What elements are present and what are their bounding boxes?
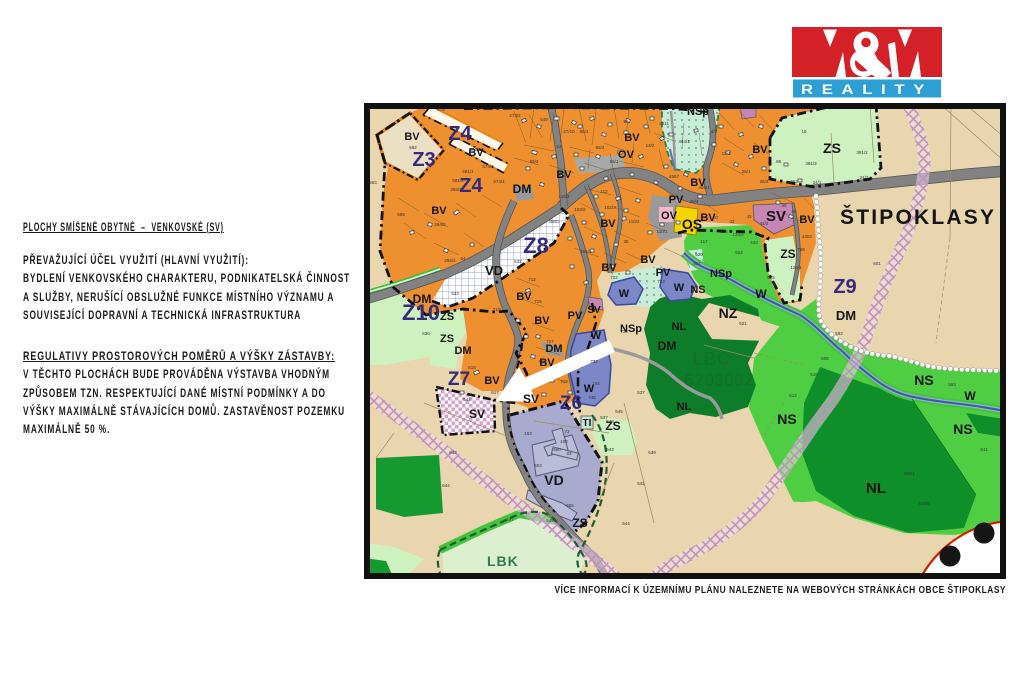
- svg-text:83: 83: [566, 451, 572, 456]
- svg-text:112: 112: [600, 189, 608, 194]
- svg-text:439/5: 439/5: [918, 501, 930, 506]
- svg-text:BV: BV: [640, 254, 656, 266]
- svg-text:548: 548: [606, 419, 614, 424]
- svg-text:102: 102: [560, 439, 568, 444]
- svg-text:64: 64: [460, 256, 466, 261]
- svg-text:610: 610: [810, 372, 818, 377]
- svg-text:644: 644: [442, 483, 450, 488]
- svg-text:12/1: 12/1: [722, 151, 731, 156]
- svg-text:W: W: [674, 282, 685, 294]
- svg-text:71/2: 71/2: [493, 307, 502, 312]
- svg-text:391/2: 391/2: [856, 150, 868, 155]
- svg-text:391/3: 391/3: [805, 161, 817, 166]
- svg-text:49: 49: [781, 203, 787, 208]
- svg-text:DM: DM: [513, 182, 532, 196]
- svg-text:66/1: 66/1: [580, 129, 589, 134]
- svg-text:DM: DM: [658, 339, 677, 353]
- svg-text:26/1: 26/1: [742, 169, 751, 174]
- svg-text:BV: BV: [534, 315, 550, 327]
- svg-text:611: 611: [980, 447, 988, 452]
- svg-text:ZS: ZS: [440, 311, 454, 323]
- svg-text:718: 718: [538, 359, 546, 364]
- svg-text:585: 585: [397, 212, 405, 217]
- svg-text:439/1: 439/1: [903, 471, 915, 476]
- svg-text:517: 517: [693, 261, 701, 266]
- svg-text:117: 117: [700, 239, 708, 244]
- svg-text:15: 15: [801, 129, 807, 134]
- svg-text:24/2: 24/2: [860, 175, 869, 180]
- svg-text:118: 118: [720, 229, 728, 234]
- svg-text:NS: NS: [777, 411, 796, 427]
- svg-text:593: 593: [948, 382, 956, 387]
- svg-text:134/2: 134/2: [732, 232, 744, 237]
- svg-text:643: 643: [449, 450, 457, 455]
- svg-text:PV: PV: [669, 194, 684, 206]
- svg-text:42: 42: [729, 219, 735, 224]
- svg-text:723: 723: [657, 279, 665, 284]
- svg-text:W: W: [619, 288, 630, 300]
- svg-text:532: 532: [514, 259, 522, 264]
- svg-text:555: 555: [566, 503, 574, 508]
- svg-text:13/2: 13/2: [646, 143, 655, 148]
- svg-text:PV: PV: [568, 310, 583, 322]
- svg-text:Z6: Z6: [560, 393, 582, 414]
- svg-text:NZ: NZ: [719, 305, 738, 321]
- svg-text:DM: DM: [836, 308, 856, 323]
- svg-text:563: 563: [369, 180, 377, 185]
- svg-text:647: 647: [506, 517, 514, 522]
- svg-text:734: 734: [620, 329, 628, 334]
- svg-text:NS: NS: [953, 421, 972, 437]
- svg-text:592: 592: [835, 331, 843, 336]
- svg-text:722: 722: [610, 275, 618, 280]
- svg-text:BV: BV: [556, 169, 572, 181]
- svg-text:NL: NL: [677, 401, 692, 413]
- svg-text:574/4: 574/4: [493, 179, 505, 184]
- svg-text:36: 36: [623, 239, 629, 244]
- svg-text:601: 601: [873, 261, 881, 266]
- svg-text:545: 545: [615, 409, 623, 414]
- svg-text:543: 543: [606, 447, 614, 452]
- svg-text:255/2: 255/2: [444, 258, 456, 263]
- svg-text:618: 618: [468, 365, 476, 370]
- svg-text:W: W: [964, 389, 976, 403]
- svg-text:444/1: 444/1: [678, 139, 690, 144]
- svg-text:65/1: 65/1: [610, 159, 619, 164]
- svg-text:48/4: 48/4: [690, 199, 699, 204]
- svg-text:103/2: 103/2: [574, 207, 586, 212]
- svg-text:4587: 4587: [669, 174, 680, 179]
- svg-text:719: 719: [560, 379, 568, 384]
- svg-text:582: 582: [409, 145, 417, 150]
- svg-text:59: 59: [623, 119, 629, 124]
- svg-text:OV: OV: [618, 149, 635, 161]
- svg-text:581/2: 581/2: [452, 178, 464, 183]
- svg-text:73: 73: [564, 429, 570, 434]
- svg-text:OV: OV: [661, 210, 678, 222]
- svg-text:DM: DM: [545, 343, 562, 355]
- svg-text:TI: TI: [583, 418, 592, 429]
- svg-text:3311: 3311: [659, 121, 669, 126]
- svg-text:262: 262: [790, 179, 798, 184]
- svg-text:521: 521: [739, 321, 747, 326]
- svg-text:537: 537: [637, 390, 645, 395]
- svg-text:544: 544: [622, 521, 630, 526]
- svg-text:745: 745: [588, 395, 596, 400]
- svg-text:553: 553: [534, 463, 542, 468]
- svg-text:Z7: Z7: [448, 369, 470, 390]
- svg-text:ZS: ZS: [440, 333, 454, 345]
- svg-text:DM: DM: [454, 345, 471, 357]
- svg-text:520: 520: [695, 252, 703, 257]
- svg-text:102/3: 102/3: [604, 205, 616, 210]
- svg-text:163: 163: [524, 431, 532, 436]
- svg-text:574/2: 574/2: [469, 147, 481, 152]
- svg-text:Z9: Z9: [833, 276, 856, 298]
- svg-text:ŠTIPOKLASY: ŠTIPOKLASY: [840, 205, 996, 229]
- svg-text:617: 617: [491, 390, 499, 395]
- svg-text:SV: SV: [766, 208, 786, 225]
- svg-text:LBK: LBK: [487, 553, 519, 569]
- svg-text:ZS: ZS: [572, 516, 587, 530]
- svg-text:433: 433: [750, 240, 758, 245]
- svg-text:65/2: 65/2: [596, 145, 605, 150]
- svg-text:549: 549: [546, 518, 554, 523]
- svg-text:NL: NL: [866, 480, 886, 497]
- svg-text:45: 45: [791, 209, 797, 214]
- svg-text:VD: VD: [485, 263, 503, 278]
- svg-text:SV: SV: [469, 407, 485, 421]
- svg-text:110/2: 110/2: [629, 219, 640, 224]
- svg-text:712: 712: [528, 277, 536, 282]
- svg-text:43: 43: [746, 214, 752, 219]
- svg-text:SV: SV: [523, 392, 539, 406]
- svg-text:24/1: 24/1: [813, 180, 822, 185]
- svg-text:Z4: Z4: [448, 123, 472, 145]
- svg-text:14: 14: [556, 144, 562, 149]
- svg-text:BV: BV: [431, 205, 447, 217]
- svg-text:4/2: 4/2: [711, 129, 718, 134]
- svg-text:BV: BV: [799, 214, 815, 226]
- svg-text:608: 608: [821, 356, 829, 361]
- svg-text:758: 758: [797, 247, 805, 252]
- svg-text:BV: BV: [404, 131, 420, 143]
- svg-text:459/1: 459/1: [698, 185, 710, 190]
- svg-text:.88: .88: [775, 159, 782, 164]
- svg-text:SV: SV: [587, 305, 601, 316]
- svg-text:6203002: 6203002: [684, 370, 754, 390]
- svg-text:Z8: Z8: [523, 233, 549, 258]
- svg-text:BV: BV: [484, 375, 500, 387]
- svg-text:W: W: [591, 330, 602, 342]
- svg-text:BV: BV: [752, 144, 768, 156]
- svg-text:47: 47: [713, 215, 719, 220]
- svg-text:BV: BV: [624, 132, 640, 144]
- svg-text:264/2: 264/2: [434, 222, 446, 227]
- svg-text:BV: BV: [516, 291, 532, 303]
- svg-text:66/2: 66/2: [530, 159, 539, 164]
- svg-text:744: 744: [592, 381, 600, 386]
- svg-text:OS: OS: [682, 216, 702, 232]
- svg-text:27/10: 27/10: [563, 129, 575, 134]
- svg-text:DM: DM: [413, 292, 432, 306]
- svg-text:110/3: 110/3: [559, 194, 570, 199]
- svg-text:44/2: 44/2: [760, 221, 769, 226]
- svg-text:574/3: 574/3: [482, 164, 494, 169]
- svg-text:REALITY: REALITY: [801, 82, 933, 97]
- svg-text:W: W: [755, 287, 767, 301]
- svg-text:VD: VD: [544, 472, 563, 488]
- svg-text:642: 642: [463, 397, 471, 402]
- svg-text:549: 549: [540, 117, 548, 122]
- svg-text:715: 715: [534, 299, 542, 304]
- svg-text:Z3: Z3: [412, 149, 435, 171]
- svg-text:533: 533: [451, 291, 459, 296]
- svg-text:524: 524: [735, 250, 743, 255]
- svg-text:539: 539: [648, 450, 656, 455]
- svg-text:ZS: ZS: [823, 140, 841, 156]
- svg-text:123/1: 123/1: [790, 265, 802, 270]
- svg-text:110/1: 110/1: [657, 229, 668, 234]
- svg-text:LBC: LBC: [693, 349, 730, 369]
- svg-text:4352: 4352: [802, 234, 813, 239]
- svg-text:612: 612: [789, 393, 797, 398]
- svg-text:581/1: 581/1: [462, 169, 474, 174]
- svg-text:541: 541: [637, 481, 645, 486]
- svg-text:498/2: 498/2: [548, 219, 560, 224]
- svg-text:26/2: 26/2: [760, 179, 769, 184]
- svg-text:265/2: 265/2: [450, 187, 462, 192]
- svg-text:NL: NL: [672, 321, 687, 333]
- svg-text:NSp: NSp: [710, 268, 732, 280]
- svg-text:NS: NS: [690, 284, 705, 296]
- svg-text:BV: BV: [601, 262, 617, 274]
- svg-text:717: 717: [546, 339, 554, 344]
- svg-text:636: 636: [422, 331, 430, 336]
- svg-text:NS: NS: [914, 372, 933, 388]
- svg-text:733: 733: [590, 359, 598, 364]
- svg-text:273/2: 273/2: [509, 113, 521, 118]
- svg-text:101/1: 101/1: [580, 249, 592, 254]
- svg-text:ZS: ZS: [780, 247, 795, 261]
- svg-text:PV: PV: [656, 267, 671, 279]
- svg-text:525: 525: [767, 275, 775, 280]
- svg-text:550: 550: [553, 447, 561, 452]
- svg-text:BV: BV: [600, 218, 616, 230]
